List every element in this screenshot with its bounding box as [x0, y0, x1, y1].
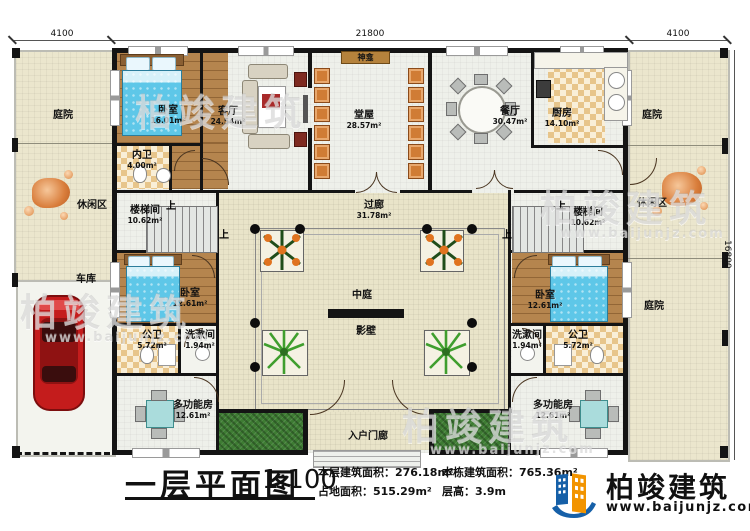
room-label-public-bath-left: 公卫: [137, 330, 167, 342]
hall-chair: [314, 106, 330, 122]
tv: [303, 95, 308, 123]
wall: [429, 409, 434, 455]
garage-door-dashed: [16, 452, 110, 455]
fruit-tree-icon: [258, 226, 306, 274]
room-area: 31.78m²: [357, 212, 392, 221]
room-label-courtyard-br: 庭院: [644, 301, 664, 312]
dimension-top-right: 4100: [667, 29, 690, 39]
room-area: 1.94m²: [512, 342, 542, 351]
room-label-leisure-right: 休闲区: [637, 198, 667, 209]
room-label-stair-left: 楼梯间: [128, 205, 163, 217]
room-area: 1.94m²: [185, 342, 215, 351]
dimension-top-left: 4100: [51, 29, 74, 39]
hall-chair: [314, 125, 330, 141]
site-left: [14, 50, 116, 282]
room-label-inner-bath: 内卫: [127, 150, 157, 162]
room-label-courtyard-tr: 庭院: [642, 110, 662, 121]
room-label-stair-right: 楼梯间: [571, 207, 606, 219]
hall-chair: [314, 144, 330, 160]
stat-building-area-label: 本栋建筑面积：: [442, 466, 519, 479]
rockery-icon: [24, 206, 34, 216]
wall: [508, 323, 628, 326]
room-label-wash-right: 洗漱间: [512, 330, 542, 342]
screen-wall-bar: [328, 309, 404, 318]
fruit-tree-icon: [420, 226, 468, 274]
pillow: [126, 57, 150, 71]
room-label-multi-left: 多功能房: [173, 400, 213, 412]
room-area: 14.10m²: [545, 120, 580, 129]
window: [110, 70, 120, 126]
bed: [122, 70, 182, 136]
wall: [112, 143, 200, 146]
multi-table: [580, 400, 608, 428]
multi-chair: [585, 390, 601, 401]
hall-chair: [314, 87, 330, 103]
grass-right: [432, 412, 510, 452]
dimension-line-top: [12, 40, 728, 41]
room-label-garage: 车库: [76, 274, 96, 285]
hall-chair: [314, 68, 330, 84]
wall: [112, 373, 219, 376]
window: [446, 46, 508, 56]
room-label-entry-porch: 入户门廊: [348, 431, 388, 442]
title-underline: [125, 497, 315, 500]
stat-height-value: 3.9m: [475, 485, 506, 498]
room-label-bedroom-tl: 卧室: [151, 105, 186, 117]
dining-chair: [474, 74, 488, 85]
wall: [169, 146, 172, 190]
room-area: 4.00m²: [127, 162, 157, 171]
room-label-leisure-left: 休闲区: [77, 200, 107, 211]
wall-chunk: [12, 138, 18, 152]
stat-land-area-label: 占地面积：: [318, 485, 373, 498]
tv-cabinet: [294, 132, 307, 147]
wall: [543, 326, 546, 373]
room-label-atrium: 中庭: [352, 290, 372, 301]
room-area: 10.62m²: [128, 217, 163, 226]
column: [250, 318, 260, 328]
stove: [536, 80, 551, 98]
hall-chair: [408, 87, 424, 103]
room-label-public-bath-right: 公卫: [563, 330, 593, 342]
hall-chair: [408, 163, 424, 179]
room-label-wash-left: 洗漱间: [185, 330, 215, 342]
column: [250, 362, 260, 372]
hall-chair: [408, 106, 424, 122]
dimension-top-middle: 21800: [356, 29, 385, 39]
wall: [178, 326, 181, 373]
kitchen-sink: [608, 94, 625, 111]
room-area: 28.57m²: [347, 122, 382, 131]
palm-plant-icon: [260, 328, 308, 376]
room-label-screen-wall: 影壁: [356, 326, 376, 337]
wall-chunk: [720, 48, 728, 58]
room-label-multi-right: 多功能房: [533, 400, 573, 412]
room-label-hall: 堂屋: [347, 110, 382, 122]
hall-chair: [314, 163, 330, 179]
pillow: [152, 57, 176, 71]
wall-chunk: [720, 446, 728, 458]
room-area: 5.72m²: [137, 342, 167, 351]
multi-chair: [585, 428, 601, 439]
wall: [508, 190, 511, 252]
multi-table: [146, 400, 174, 428]
room-area: 10.62m²: [571, 219, 606, 228]
window: [540, 448, 608, 458]
wall: [428, 50, 432, 190]
car-icon: [30, 292, 88, 414]
sofa: [248, 134, 290, 149]
window: [132, 448, 200, 458]
stat-land-area-value: 515.29m²: [373, 485, 432, 498]
kitchen-sink: [608, 72, 625, 89]
room-area: 12.61m²: [173, 412, 213, 421]
wall: [308, 128, 312, 190]
dimension-line-right: [734, 50, 735, 460]
room-label-corridor: 过廊: [357, 200, 392, 212]
brand-logo-icon: [548, 464, 600, 520]
dimension-right-side: 16800: [722, 240, 732, 269]
rockery-icon: [697, 166, 706, 175]
wall: [112, 323, 219, 326]
site-divider: [628, 145, 724, 146]
room-label-dining: 餐厅: [493, 106, 528, 118]
room-area: 5.72m²: [563, 342, 593, 351]
column: [467, 224, 477, 234]
brand-website: www.baijunjz.com: [606, 500, 750, 515]
washbasin: [156, 168, 171, 183]
palm-plant-icon: [422, 328, 470, 376]
rockery-icon: [60, 212, 68, 220]
room-label-bedroom-bl: 卧室: [173, 288, 208, 300]
room-area: 12.61m²: [533, 412, 573, 421]
rockery-icon: [700, 202, 708, 210]
wall: [508, 373, 628, 376]
room-label-living: 客厅: [211, 106, 246, 118]
room-area: 16.01m²: [151, 117, 186, 126]
wall: [112, 190, 355, 193]
window: [238, 46, 294, 56]
wall: [308, 50, 312, 88]
room-label-courtyard-tl: 庭院: [53, 110, 73, 121]
wall: [531, 145, 628, 148]
wall: [216, 250, 219, 455]
wall-chunk: [722, 138, 728, 154]
column: [467, 318, 477, 328]
room-label-bedroom-br: 卧室: [528, 290, 563, 302]
room-area: 12.61m²: [173, 300, 208, 309]
hall-chair: [408, 144, 424, 160]
wall: [430, 409, 512, 413]
room-area: 12.61m²: [528, 302, 563, 311]
dining-chair: [446, 102, 457, 116]
stairs-up-label: 上: [219, 226, 229, 241]
grass-left: [219, 412, 305, 452]
room-area: 24.54m²: [211, 118, 246, 127]
room-area: 30.47m²: [493, 118, 528, 127]
wall: [514, 190, 628, 193]
dining-chair: [474, 133, 488, 144]
wall: [303, 409, 308, 455]
wall: [218, 409, 305, 413]
shrine-banner: 神龛: [341, 51, 390, 64]
multi-chair: [151, 390, 167, 401]
multi-chair: [151, 428, 167, 439]
stairs-up-label: 上: [166, 197, 176, 212]
tv-cabinet: [294, 72, 307, 87]
hall-chair: [408, 125, 424, 141]
floor-plan-page: 4100 21800 4100 16800: [0, 0, 750, 531]
window: [622, 262, 632, 318]
stat-height-label: 层高：: [442, 485, 475, 498]
multi-chair: [608, 406, 619, 422]
sofa: [248, 64, 288, 79]
wall: [400, 190, 472, 193]
site-divider: [16, 143, 112, 144]
window: [110, 262, 120, 318]
wall-chunk: [12, 48, 20, 58]
rockery-icon: [64, 170, 73, 179]
wall-chunk: [12, 273, 18, 287]
hall-chair: [408, 68, 424, 84]
rug: [262, 94, 280, 108]
site-divider: [628, 258, 724, 259]
stairs-up-label: 上: [556, 197, 566, 212]
multi-chair: [135, 406, 146, 422]
room-label-kitchen: 厨房: [545, 108, 580, 120]
wall: [508, 250, 511, 455]
stairs-up-label: 上: [502, 226, 512, 241]
stat-floor-area-label: 本层建筑面积：: [318, 466, 395, 479]
wall-chunk: [722, 330, 728, 346]
